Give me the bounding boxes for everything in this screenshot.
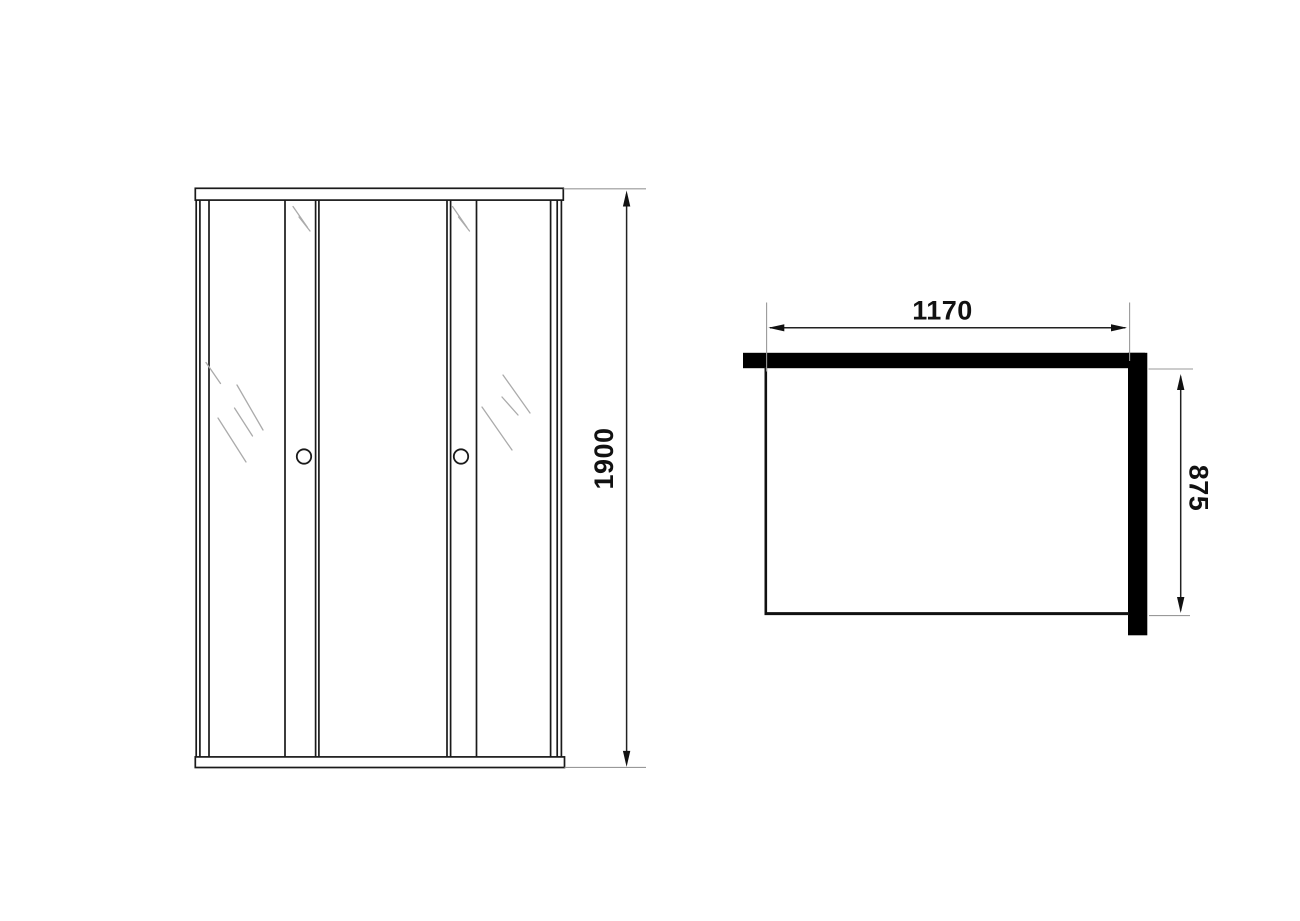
depth-dimension: 875 [1149,369,1214,616]
bottom-rail [195,757,564,768]
glass-mark [235,408,253,436]
height-dimension: 1900 [564,189,647,768]
top-rail [195,188,563,200]
glass-mark [482,407,512,450]
arrowhead-up-icon [623,191,630,207]
arrowhead-down-icon [1177,597,1184,613]
glass-hatch-marks [206,207,530,463]
glass-mark [299,217,310,231]
glass-mark [218,418,246,462]
top-view: 1170 875 [743,296,1214,636]
door-handle-left [297,449,311,463]
depth-dimension-label: 875 [1184,465,1214,512]
arrowhead-down-icon [623,751,630,767]
shower-enclosure-drawing: 1900 1170 [0,0,1300,921]
door-handle-right [454,449,468,463]
panel-edge-lines [196,200,561,757]
glass-mark [459,217,470,231]
arrowhead-up-icon [1177,374,1184,390]
door-wall-bar [743,353,1145,368]
glass-mark [503,375,530,413]
side-wall-bar [1128,353,1147,636]
arrowhead-right-icon [1111,324,1127,331]
height-dimension-label: 1900 [589,427,619,489]
front-view: 1900 [195,188,646,767]
width-dimension-label: 1170 [912,296,973,326]
technical-drawing-canvas: 1900 1170 [0,0,1300,921]
glass-mark [237,385,263,430]
arrowhead-left-icon [768,324,784,331]
glass-mark [502,397,518,415]
